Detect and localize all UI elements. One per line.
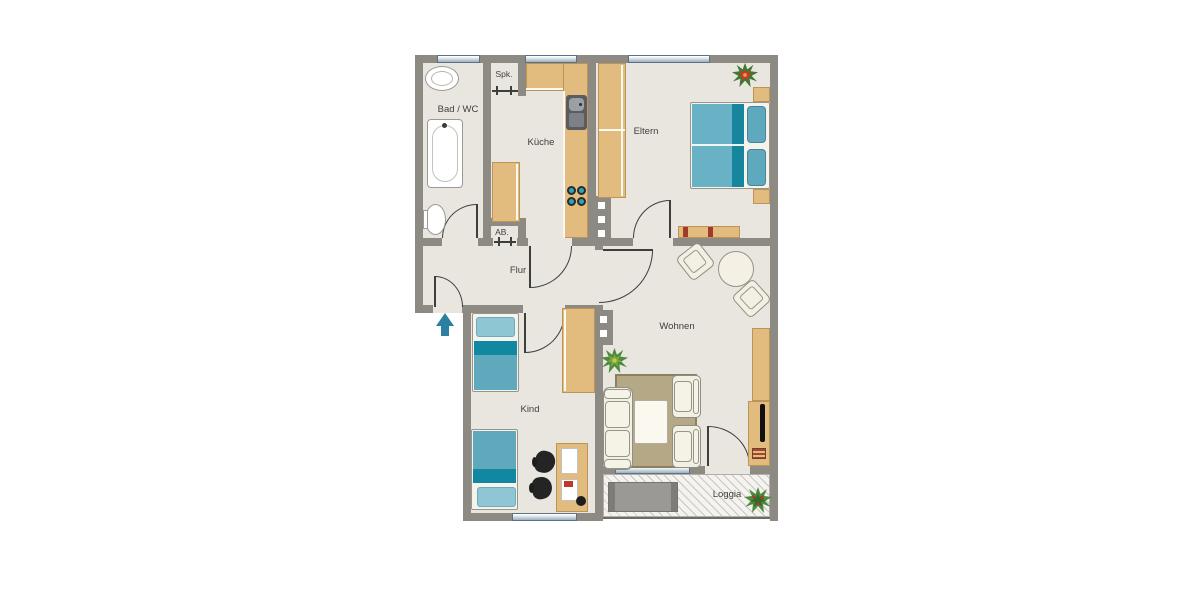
wall (463, 513, 512, 521)
window (437, 55, 480, 63)
loggia-table-end (671, 483, 677, 511)
wall (518, 218, 526, 246)
bathtub-faucet (442, 123, 447, 128)
wall-unit (752, 328, 770, 401)
wall (415, 305, 433, 313)
chair-seat (682, 249, 707, 274)
threshold-tick (496, 86, 498, 95)
bed-blanket (474, 355, 517, 390)
loggia-table (608, 482, 678, 512)
sofa-armrest (604, 459, 631, 469)
bed-blanket-fold (473, 469, 516, 483)
shaft-opening (598, 202, 605, 209)
wall (673, 238, 778, 246)
sideboard-handle (708, 227, 713, 237)
bathtub-basin (432, 125, 458, 182)
room-label-ab: AB. (487, 227, 517, 238)
entry-arrow-stem (441, 326, 449, 336)
outside-area (415, 313, 463, 522)
loggia-table-end (609, 483, 615, 511)
shaft-opening (598, 230, 605, 237)
screenshot-canvas: { "rooms": { "bad": {"label": "Bad / WC"… (0, 0, 1200, 600)
vent-shaft (595, 310, 613, 345)
window (525, 55, 577, 63)
stove-burner (577, 186, 586, 195)
wall (415, 55, 423, 313)
plant-icon (600, 346, 629, 375)
threshold-tick (498, 237, 500, 246)
bed-blanket-fold (474, 341, 517, 355)
counter-front (563, 91, 565, 238)
room-label-bad: Bad / WC (428, 104, 488, 115)
bed-pillow (477, 487, 516, 507)
floor-plan: Bad / WC Spk. Küche AB. Flur Eltern Kind… (415, 55, 778, 522)
room-label-kind: Kind (500, 404, 560, 415)
sofa-cushion (605, 401, 630, 428)
bed-pillow (747, 149, 766, 186)
desk-item-red (564, 481, 573, 487)
threshold-tick (510, 237, 512, 246)
nightstand (753, 87, 770, 102)
stove-burner (567, 197, 576, 206)
bed-split-line (692, 144, 744, 146)
room-label-loggia: Loggia (697, 489, 757, 500)
wall (770, 55, 778, 521)
bed-pillow (747, 106, 766, 143)
kitchen-counter (563, 63, 588, 238)
window (512, 513, 577, 521)
chair-armrest (529, 483, 534, 493)
entry-arrow-icon (436, 313, 454, 326)
shaft-opening (600, 330, 607, 337)
armchair-seat (674, 381, 692, 412)
coffee-table (634, 400, 668, 444)
sofa-cushion (605, 430, 630, 457)
loggia-edge (603, 517, 778, 519)
nightstand (753, 189, 770, 204)
room-label-kueche: Küche (511, 137, 571, 148)
wall (462, 305, 523, 313)
toilet-tank (423, 210, 428, 229)
counter-front (526, 88, 563, 90)
bed-pillow (476, 317, 515, 337)
sofa-armrest (604, 389, 631, 399)
sideboard-handle (683, 227, 688, 237)
shaft-opening (598, 216, 605, 223)
wardrobe-front (564, 310, 566, 391)
wall (463, 305, 471, 521)
room-label-flur: Flur (488, 265, 548, 276)
wall (415, 238, 442, 246)
wardrobe (562, 308, 595, 393)
toilet (425, 204, 446, 235)
chair-seat (739, 285, 764, 310)
cupboard-front (516, 164, 518, 220)
chair-armrest (532, 457, 537, 467)
stove-burner (567, 186, 576, 195)
vent-shaft (593, 196, 611, 246)
room-label-wohnen: Wohnen (647, 321, 707, 332)
threshold-tick (510, 86, 512, 95)
room-label-spk: Spk. (489, 69, 519, 80)
armchair-back (693, 379, 699, 414)
bed-blanket (473, 431, 516, 469)
sink-drain (579, 103, 582, 106)
desk-lamp (576, 496, 586, 506)
wall (750, 466, 778, 474)
armchair-seat (674, 431, 692, 462)
window (628, 55, 710, 63)
tv (760, 404, 765, 442)
shaft-opening (600, 316, 607, 323)
stereo (752, 448, 766, 459)
desk-paper (561, 448, 578, 474)
sofa (603, 387, 633, 470)
sink-basin (569, 113, 584, 127)
stove-burner (577, 197, 586, 206)
armchair-back (693, 429, 699, 464)
room-label-eltern: Eltern (616, 126, 676, 137)
plant-icon (731, 61, 759, 89)
washbasin-bowl (431, 71, 453, 86)
